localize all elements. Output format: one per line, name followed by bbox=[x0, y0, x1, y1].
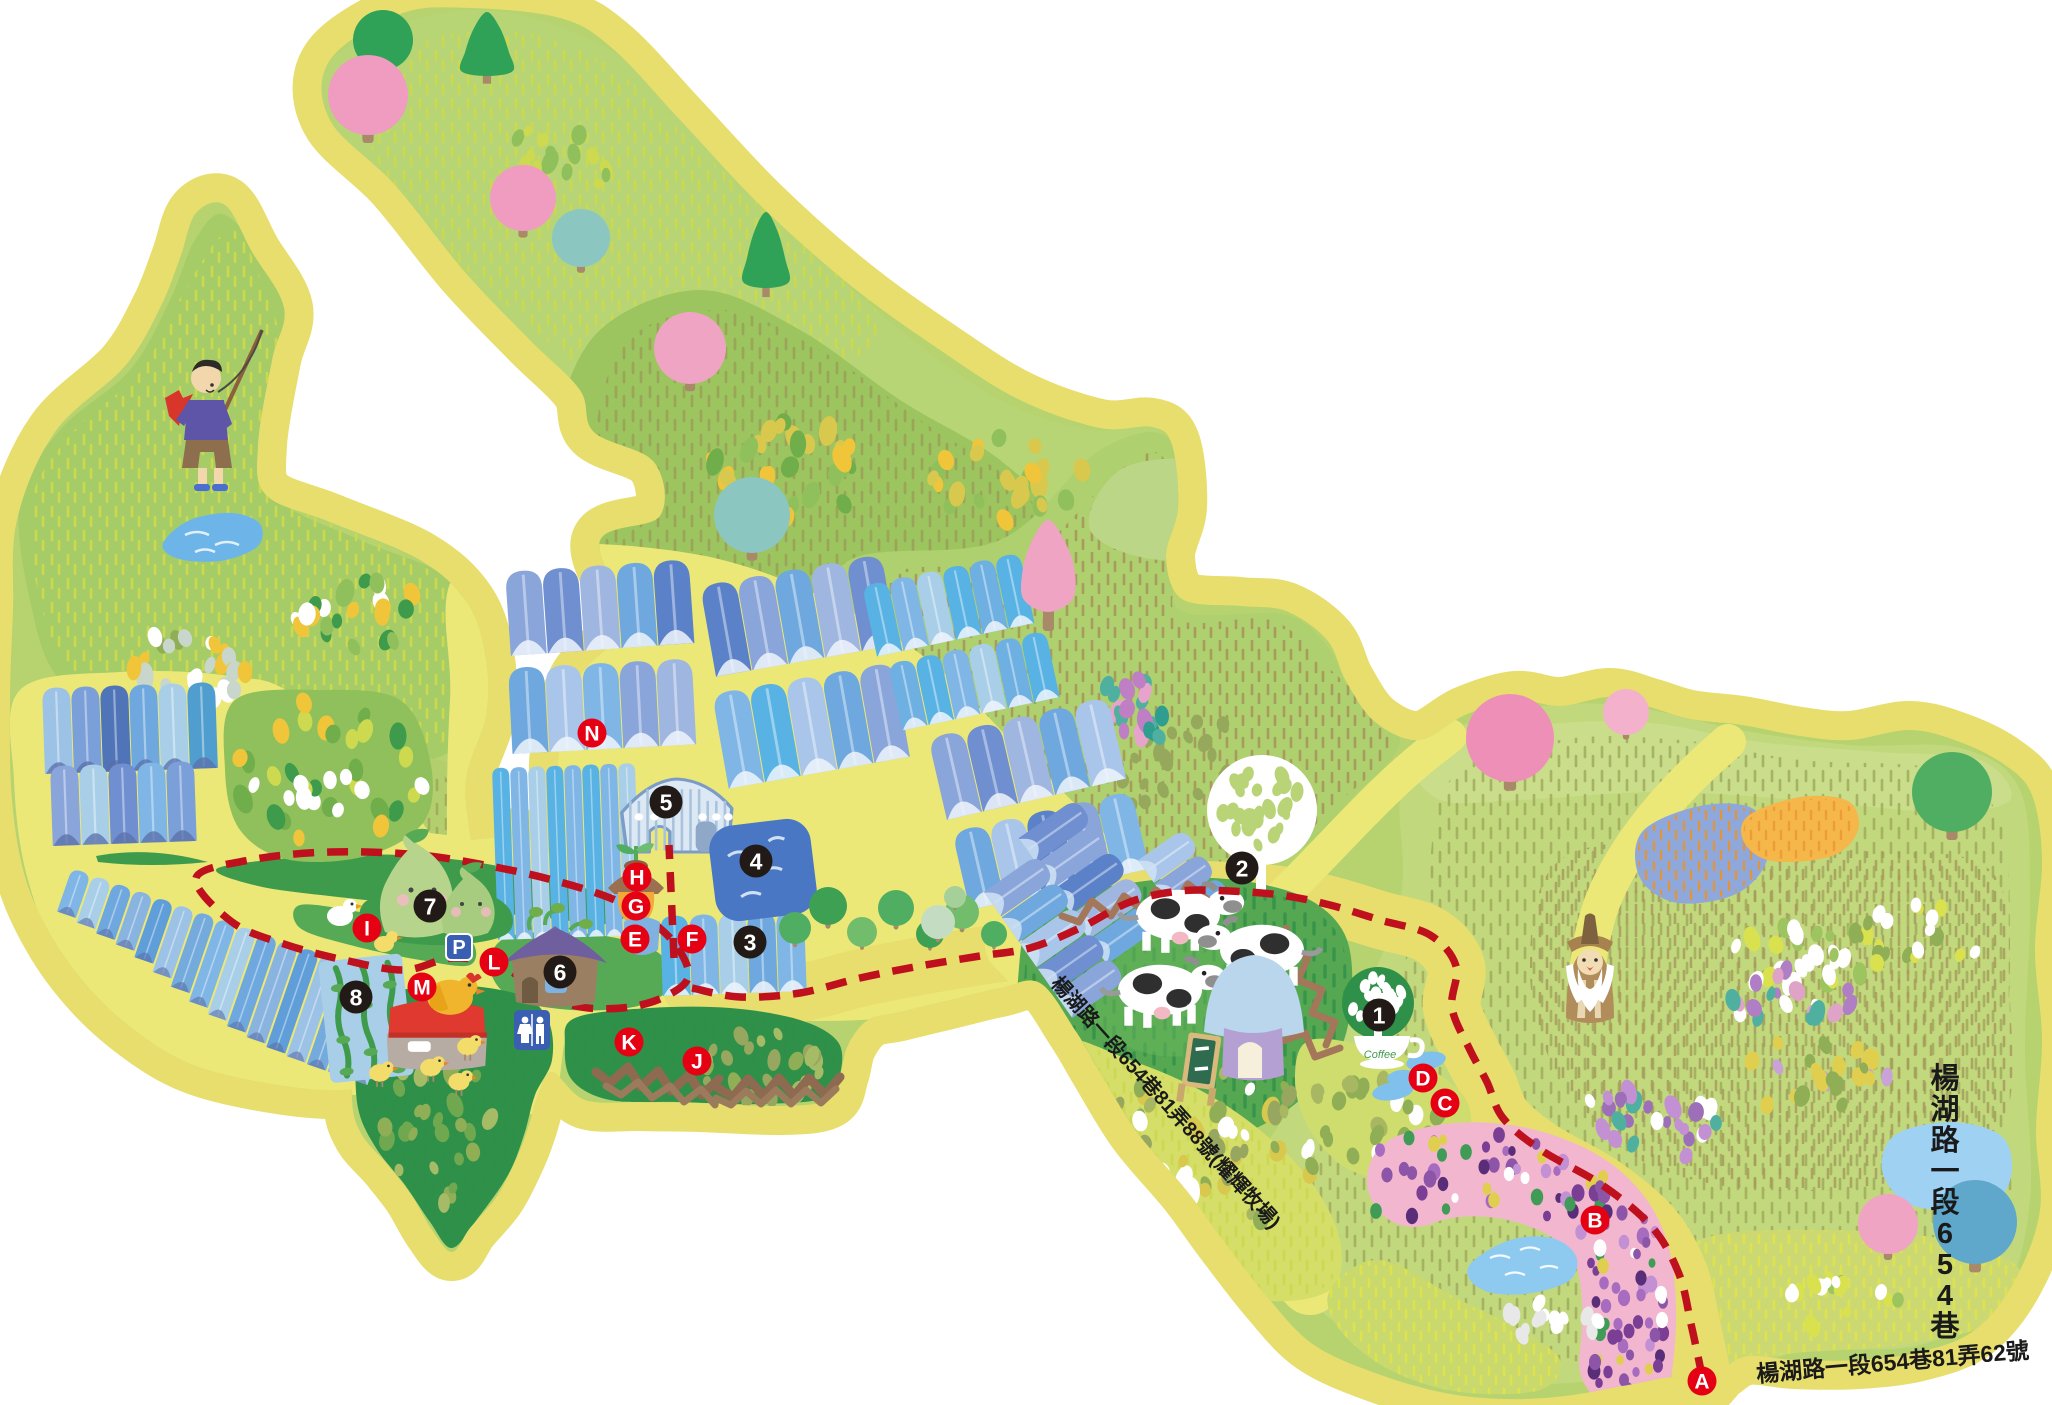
svg-text:湖: 湖 bbox=[1930, 1093, 1959, 1126]
svg-text:1: 1 bbox=[1373, 1002, 1386, 1028]
svg-text:2: 2 bbox=[1236, 855, 1249, 881]
svg-text:K: K bbox=[621, 1032, 636, 1055]
svg-text:7: 7 bbox=[424, 893, 437, 919]
svg-text:I: I bbox=[364, 918, 370, 941]
svg-text:J: J bbox=[691, 1051, 703, 1074]
svg-text:6: 6 bbox=[554, 959, 567, 985]
svg-text:A: A bbox=[1694, 1371, 1709, 1394]
svg-text:3: 3 bbox=[744, 929, 757, 955]
svg-text:D: D bbox=[1415, 1068, 1430, 1091]
svg-text:6: 6 bbox=[1937, 1218, 1953, 1250]
svg-text:G: G bbox=[628, 896, 644, 919]
svg-text:B: B bbox=[1587, 1210, 1602, 1233]
svg-text:H: H bbox=[629, 867, 644, 890]
svg-text:8: 8 bbox=[350, 984, 363, 1010]
svg-text:4: 4 bbox=[750, 848, 763, 874]
svg-text:F: F bbox=[686, 929, 699, 952]
svg-text:4: 4 bbox=[1937, 1280, 1953, 1312]
svg-text:P: P bbox=[452, 937, 465, 959]
svg-text:路: 路 bbox=[1930, 1124, 1960, 1157]
svg-text:C: C bbox=[1437, 1093, 1452, 1116]
svg-text:楊: 楊 bbox=[1930, 1062, 1959, 1095]
svg-text:E: E bbox=[628, 929, 642, 952]
svg-text:M: M bbox=[413, 977, 431, 1000]
svg-text:5: 5 bbox=[1937, 1249, 1953, 1281]
svg-text:巷: 巷 bbox=[1929, 1310, 1960, 1343]
svg-text:5: 5 bbox=[660, 789, 673, 815]
svg-text:一: 一 bbox=[1930, 1156, 1959, 1188]
svg-text:L: L bbox=[488, 952, 501, 975]
svg-text:N: N bbox=[584, 723, 599, 746]
svg-text:Coffee: Coffee bbox=[1364, 1049, 1396, 1061]
svg-text:段: 段 bbox=[1930, 1185, 1959, 1219]
